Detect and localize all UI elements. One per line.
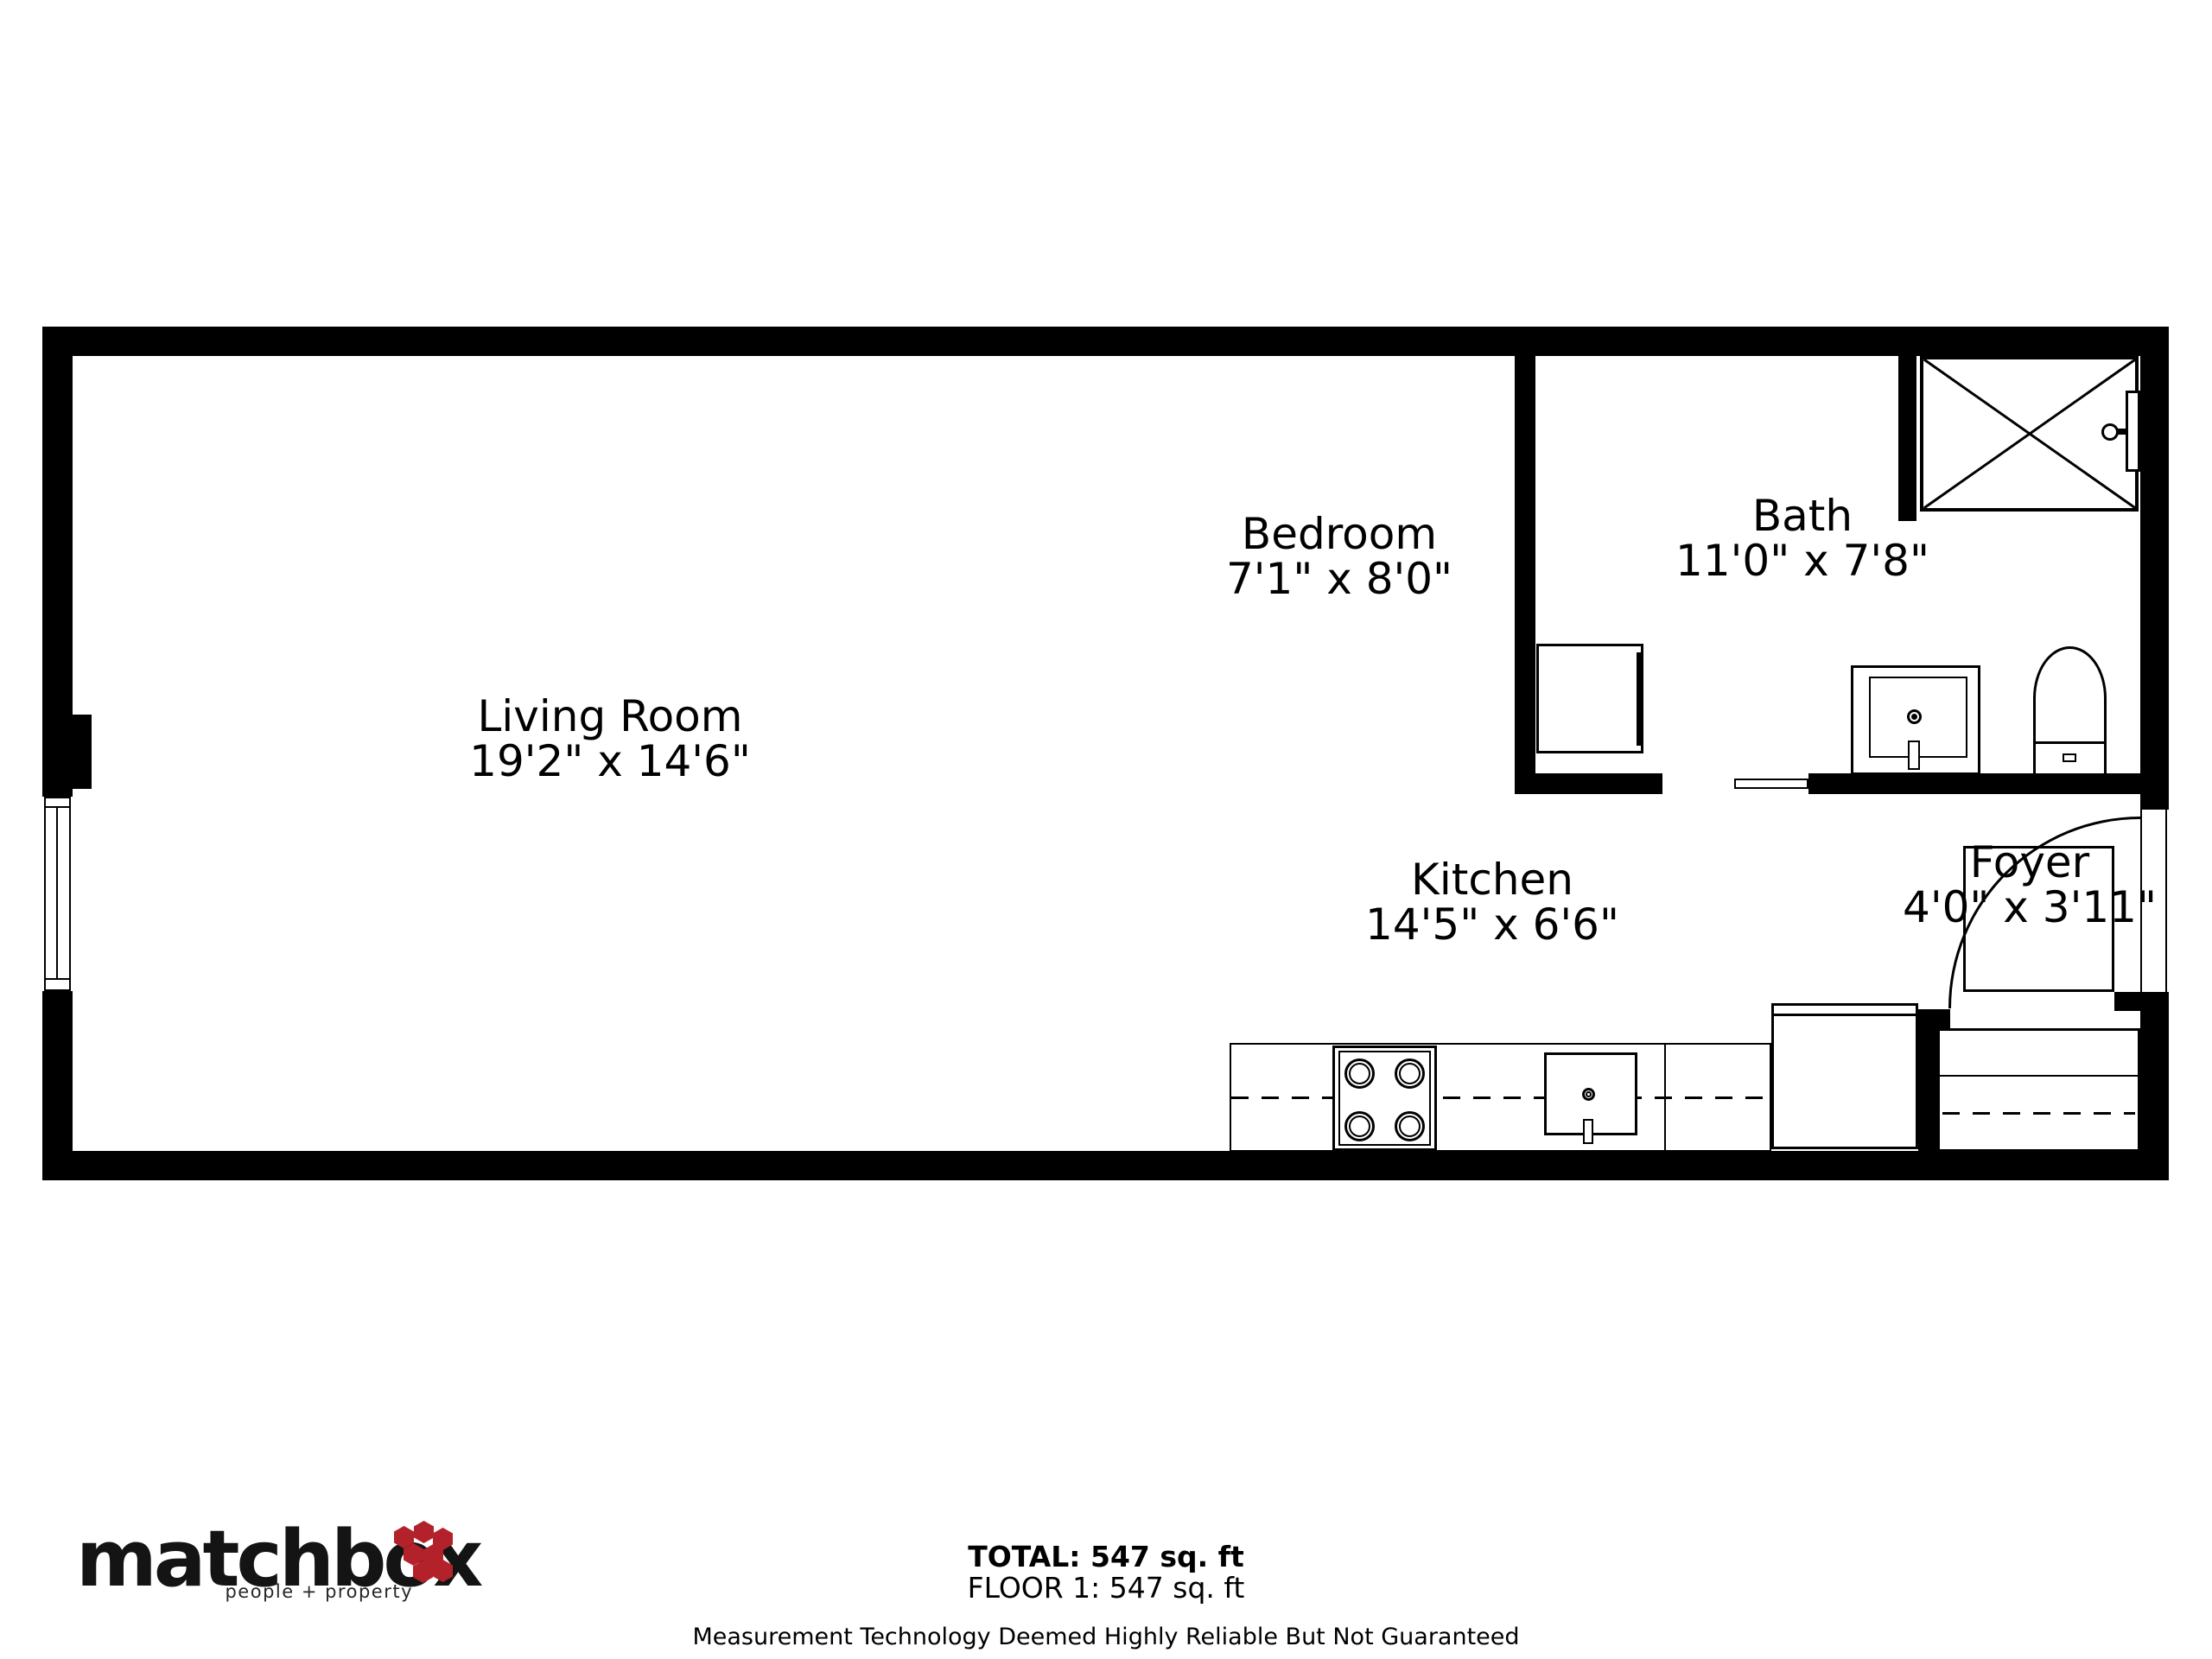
wall-foyer-kitchen — [1918, 1009, 1937, 1154]
bath-sink-drain-dot — [1911, 714, 1917, 720]
entry-door-jamb-right — [2165, 810, 2167, 992]
room-name: Foyer — [1903, 840, 2157, 885]
bath-sink-faucet — [1908, 741, 1920, 770]
foyer-bottom-block — [2114, 992, 2140, 1011]
room-label-bedroom: Bedroom 7'1" x 8'0" — [1226, 512, 1452, 601]
wall-left-lower — [42, 991, 73, 1180]
counter-centerline — [1231, 1096, 1770, 1099]
logo-tagline: people + property — [225, 1581, 413, 1602]
window-sill-bottom — [44, 978, 71, 980]
room-name: Bedroom — [1226, 512, 1452, 556]
matchbox-logo-hexagons — [393, 1521, 458, 1581]
room-dims: 19'2" x 14'6" — [469, 739, 751, 784]
room-name: Kitchen — [1365, 857, 1619, 902]
toilet-bowl-icon — [2033, 646, 2107, 744]
window-mullion — [56, 808, 58, 978]
wall-left-pier — [73, 715, 92, 789]
room-label-living-room: Living Room 19'2" x 14'6" — [469, 694, 751, 784]
room-label-kitchen: Kitchen 14'5" x 6'6" — [1365, 857, 1619, 947]
wall-bath-partition — [1515, 356, 1535, 794]
wall-top — [42, 327, 2169, 356]
wall-left-upper — [42, 327, 73, 797]
floorplan-page: { "rooms": [ { "id": "living-room", "nam… — [0, 0, 2212, 1659]
wall-right-upper — [2140, 327, 2169, 810]
foyer-closet-rod-line — [1942, 1112, 2135, 1115]
burner-top-right-inner — [1399, 1063, 1421, 1084]
room-label-bath: Bath 11'0" x 7'8" — [1675, 493, 1929, 583]
burner-bottom-right-inner — [1399, 1116, 1421, 1137]
burner-top-left-inner — [1349, 1063, 1370, 1084]
wall-bath-bottom-left — [1515, 773, 1662, 794]
kitchen-sink-faucet-dot — [1586, 1091, 1592, 1097]
bath-cabinet-door-edge — [1637, 652, 1643, 746]
refrigerator-top-line — [1774, 1014, 1916, 1016]
room-dims: 4'0" x 3'11" — [1903, 885, 2157, 930]
room-name: Bath — [1675, 493, 1929, 538]
room-label-foyer: Foyer 4'0" x 3'11" — [1903, 840, 2157, 930]
room-dims: 11'0" x 7'8" — [1675, 538, 1929, 583]
refrigerator-icon — [1771, 1003, 1918, 1149]
shower-head-bracket-icon — [2126, 391, 2140, 472]
foyer-closet-shelf-line — [1940, 1075, 2138, 1077]
logo-hexagon-icon — [414, 1521, 434, 1543]
wall-foyer-kitchen-stub — [1918, 1009, 1950, 1028]
bath-sliding-door — [1734, 779, 1808, 789]
floor-area-text: FLOOR 1: 547 sq. ft — [968, 1571, 1245, 1605]
wall-right-lower — [2140, 992, 2169, 1180]
toilet-flush-handle — [2063, 753, 2076, 762]
wall-bottom — [42, 1151, 2169, 1180]
total-area-text: TOTAL: 547 sq. ft — [968, 1540, 1244, 1573]
room-name: Living Room — [469, 694, 751, 739]
wall-bath-bottom-right — [1808, 773, 2140, 794]
bath-cabinet-icon — [1536, 644, 1643, 753]
foyer-closet-icon — [1937, 1028, 2140, 1152]
disclaimer-text: Measurement Technology Deemed Highly Rel… — [692, 1624, 1519, 1650]
room-dims: 7'1" x 8'0" — [1226, 556, 1452, 601]
room-dims: 14'5" x 6'6" — [1365, 902, 1619, 947]
burner-bottom-left-inner — [1349, 1116, 1370, 1137]
kitchen-sink-faucet-stem — [1583, 1119, 1593, 1144]
